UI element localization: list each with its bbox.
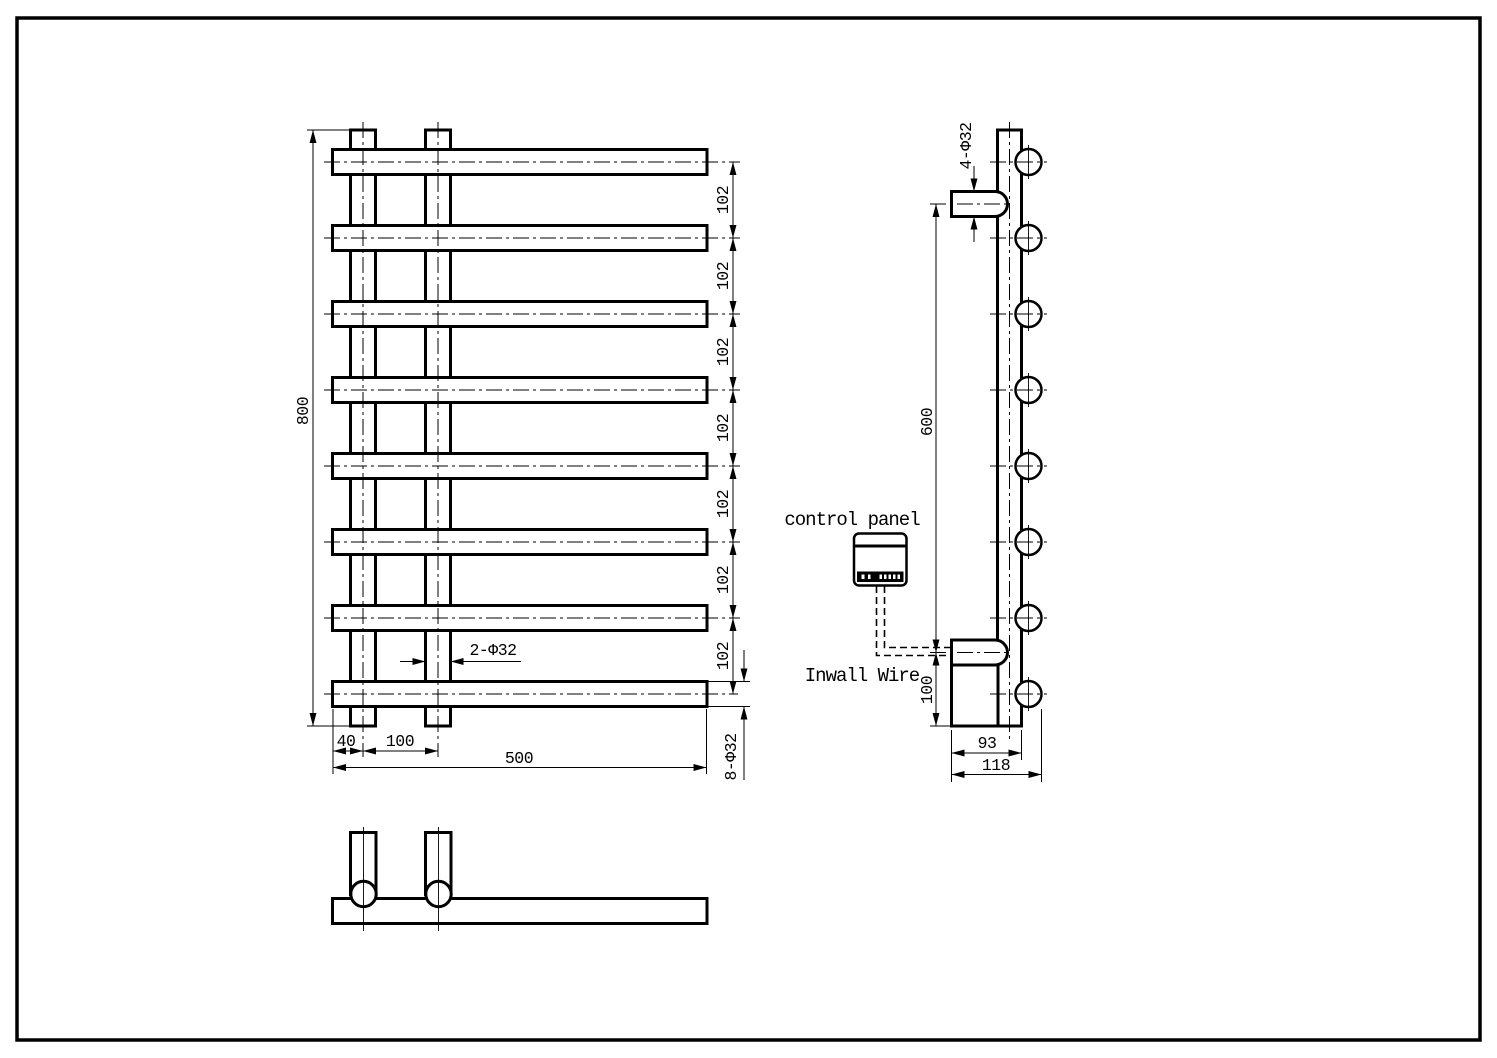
dim-4d32-text: 4-Φ32 <box>957 122 976 169</box>
dim-post-diameter: 2-Φ32 <box>400 641 521 662</box>
dim-500-text: 500 <box>505 749 533 768</box>
wire-left <box>877 586 952 656</box>
dim-bottom-widths: 40 100 500 <box>333 709 707 774</box>
dim-bracket-diameter: 4-Φ32 <box>957 122 976 242</box>
front-centerlines <box>324 122 740 757</box>
control-panel: control panel Inwall Wire <box>784 509 951 687</box>
dim-102-text-7: 102 <box>714 642 733 670</box>
dim-2d32-text: 2-Φ32 <box>469 641 516 660</box>
bottom-view-bar <box>333 899 708 924</box>
dim-102-text-2: 102 <box>714 262 733 290</box>
dim-600-text: 600 <box>918 408 937 436</box>
dim-93-text: 93 <box>978 734 997 753</box>
front-view: 800 102 102 102 102 102 102 102 2-Φ32 <box>294 122 750 781</box>
front-bars <box>333 150 708 707</box>
heater-box <box>952 665 999 726</box>
dim-800-text: 800 <box>294 397 313 425</box>
dim-height-800: 800 <box>294 130 350 726</box>
control-panel-label: control panel <box>784 509 920 531</box>
sheet-border <box>17 18 1480 1040</box>
wire-right <box>885 586 952 648</box>
dim-102-text-3: 102 <box>714 338 733 366</box>
dim-40-text: 40 <box>337 732 356 751</box>
dim-100-front-text: 100 <box>386 732 414 751</box>
dim-102-text-1: 102 <box>714 186 733 214</box>
dim-118-text: 118 <box>982 756 1010 775</box>
dim-102-text-5: 102 <box>714 490 733 518</box>
inwall-wires <box>877 586 952 656</box>
dim-100-side-text: 100 <box>918 676 937 704</box>
bottom-view <box>333 827 708 931</box>
dim-102-text-6: 102 <box>714 566 733 594</box>
inwall-wire-label: Inwall Wire <box>805 665 920 687</box>
dim-102-text-4: 102 <box>714 414 733 442</box>
dim-8d32-text: 8-Φ32 <box>722 733 741 780</box>
dim-spacing-chain: 102 102 102 102 102 102 102 <box>714 162 733 694</box>
drawing-sheet: 800 102 102 102 102 102 102 102 2-Φ32 <box>0 0 1497 1058</box>
side-view: 4-Φ32 600 100 93 118 <box>918 122 1047 782</box>
